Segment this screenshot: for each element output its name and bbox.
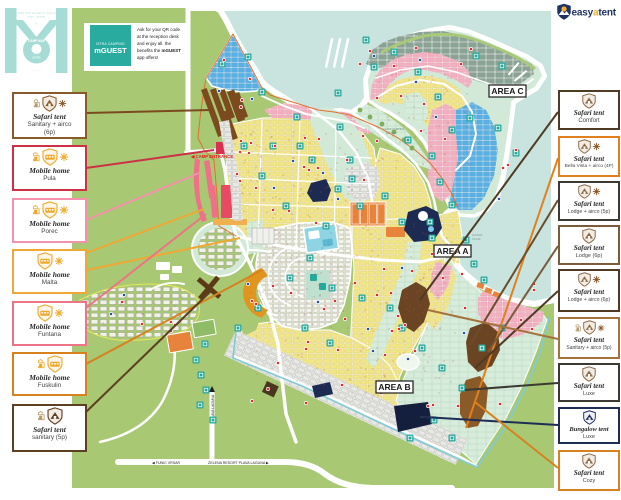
svg-text:easyatent: easyatent [572,8,617,19]
svg-text:ISTRA: ISTRA [32,56,40,60]
svg-text:◀ FUNIC VRSAR: ◀ FUNIC VRSAR [152,461,181,465]
svg-text:ZELENA RESORT PLAVA LAGUNA ▶: ZELENA RESORT PLAVA LAGUNA ▶ [208,461,270,465]
svg-text:AREA C: AREA C [491,86,523,96]
svg-text:_________: _________ [30,69,42,71]
svg-text:CAMP MAP: CAMP MAP [28,39,46,43]
svg-text:+: + [35,22,37,26]
svg-text:CLASS CAMPING: CLASS CAMPING [383,127,404,131]
svg-text:PLAVA LAGUNA: PLAVA LAGUNA [211,394,215,420]
svg-text:◀ CAMP ENTRANCE: ◀ CAMP ENTRANCE [190,154,233,159]
svg-text:AREA B: AREA B [378,382,410,392]
svg-text:CAMPING BIJELA UVALA: CAMPING BIJELA UVALA [15,11,58,15]
svg-text:POREC · CROATIA: POREC · CROATIA [27,16,45,19]
svg-text:424-564: 424-564 [386,131,396,135]
svg-text:SLIDE: SLIDE [472,237,481,241]
